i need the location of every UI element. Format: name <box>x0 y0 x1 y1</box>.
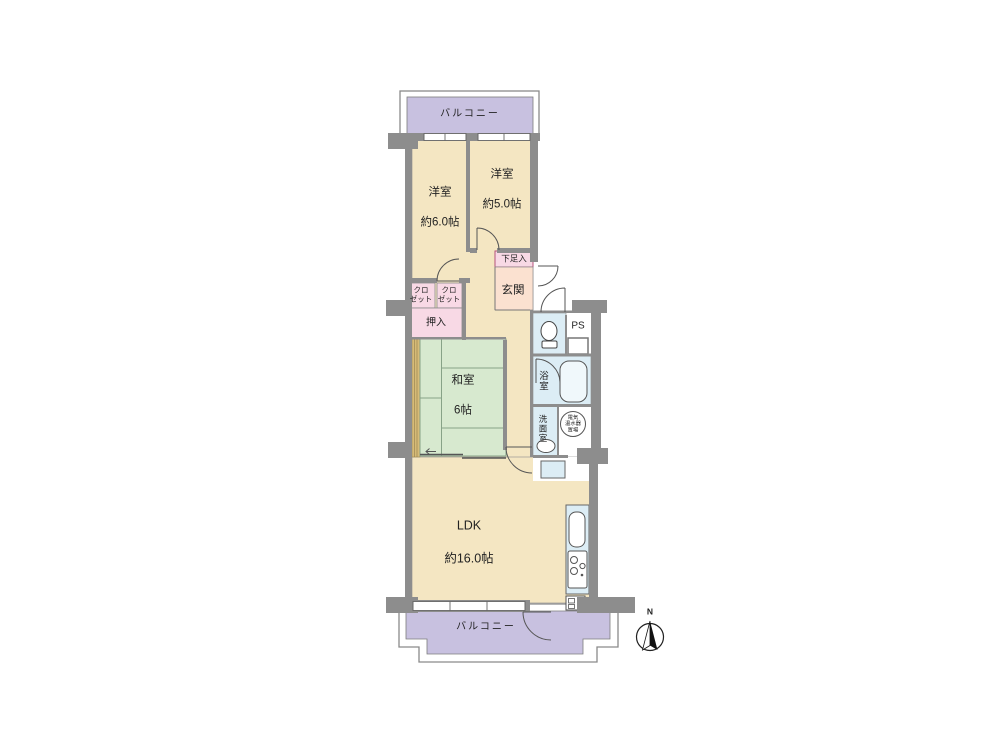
ldk-size: 約16.0帖 <box>444 550 493 566</box>
wall-block-left-2 <box>386 300 412 316</box>
wall-block-left-3 <box>388 442 412 458</box>
japanese-room-size: 6帖 <box>452 403 475 418</box>
stove-icon <box>568 551 587 588</box>
wall-block-bottom-right <box>577 597 635 613</box>
kitchen-counter <box>566 505 589 594</box>
bedroom1-label: 洋室 約6.0帖 <box>421 171 460 246</box>
balcony-top-label: バルコニー <box>440 108 500 121</box>
bathroom-label: 浴室 <box>535 371 549 392</box>
ldk-label: LDK 約16.0帖 <box>444 501 493 582</box>
washroom-label: 洗面室 <box>537 415 549 444</box>
compass <box>637 621 664 651</box>
compass-north-label: N <box>647 606 653 617</box>
door-entrance <box>538 266 558 286</box>
entrance-label: 玄関 <box>502 284 525 299</box>
water-heater-label: 電気 温水器 置場 <box>565 415 581 433</box>
closet-1-label: クロ ゼット <box>410 286 433 303</box>
oshiire-label: 押入 <box>426 317 446 330</box>
ldk-name: LDK <box>444 518 493 534</box>
bedroom2-label: 洋室 約5.0帖 <box>483 153 522 228</box>
floor-plan-page: バルコニー 洋室 約6.0帖 洋室 約5.0帖 下足入 玄関 クロ ゼット クロ… <box>0 0 1000 750</box>
japanese-room-label: 和室 6帖 <box>452 359 475 434</box>
washing-machine-pan <box>541 461 565 478</box>
wall-block-top-left <box>388 133 418 149</box>
ps-shaft-box <box>568 338 588 354</box>
window-bedroom2 <box>478 134 530 141</box>
shoe-box-label: 下足入 <box>501 253 527 264</box>
wall-block-right-1 <box>577 448 608 464</box>
ps-label: PS <box>571 320 584 333</box>
toilet-icon <box>541 322 557 349</box>
bathtub-icon <box>560 361 587 402</box>
window-ldk <box>413 602 525 611</box>
bedroom1-name: 洋室 <box>421 186 460 201</box>
closet-2-label: クロ ゼット <box>438 286 461 303</box>
balcony-bottom-label: バルコニー <box>456 621 516 634</box>
door-toilet <box>541 288 565 312</box>
japanese-room-name: 和室 <box>452 374 475 389</box>
window-bedroom1 <box>424 134 466 141</box>
bedroom1-size: 約6.0帖 <box>421 215 460 230</box>
kitchen-sink-icon <box>569 512 585 547</box>
bedroom2-size: 約5.0帖 <box>483 197 522 212</box>
bedroom2-name: 洋室 <box>483 168 522 183</box>
